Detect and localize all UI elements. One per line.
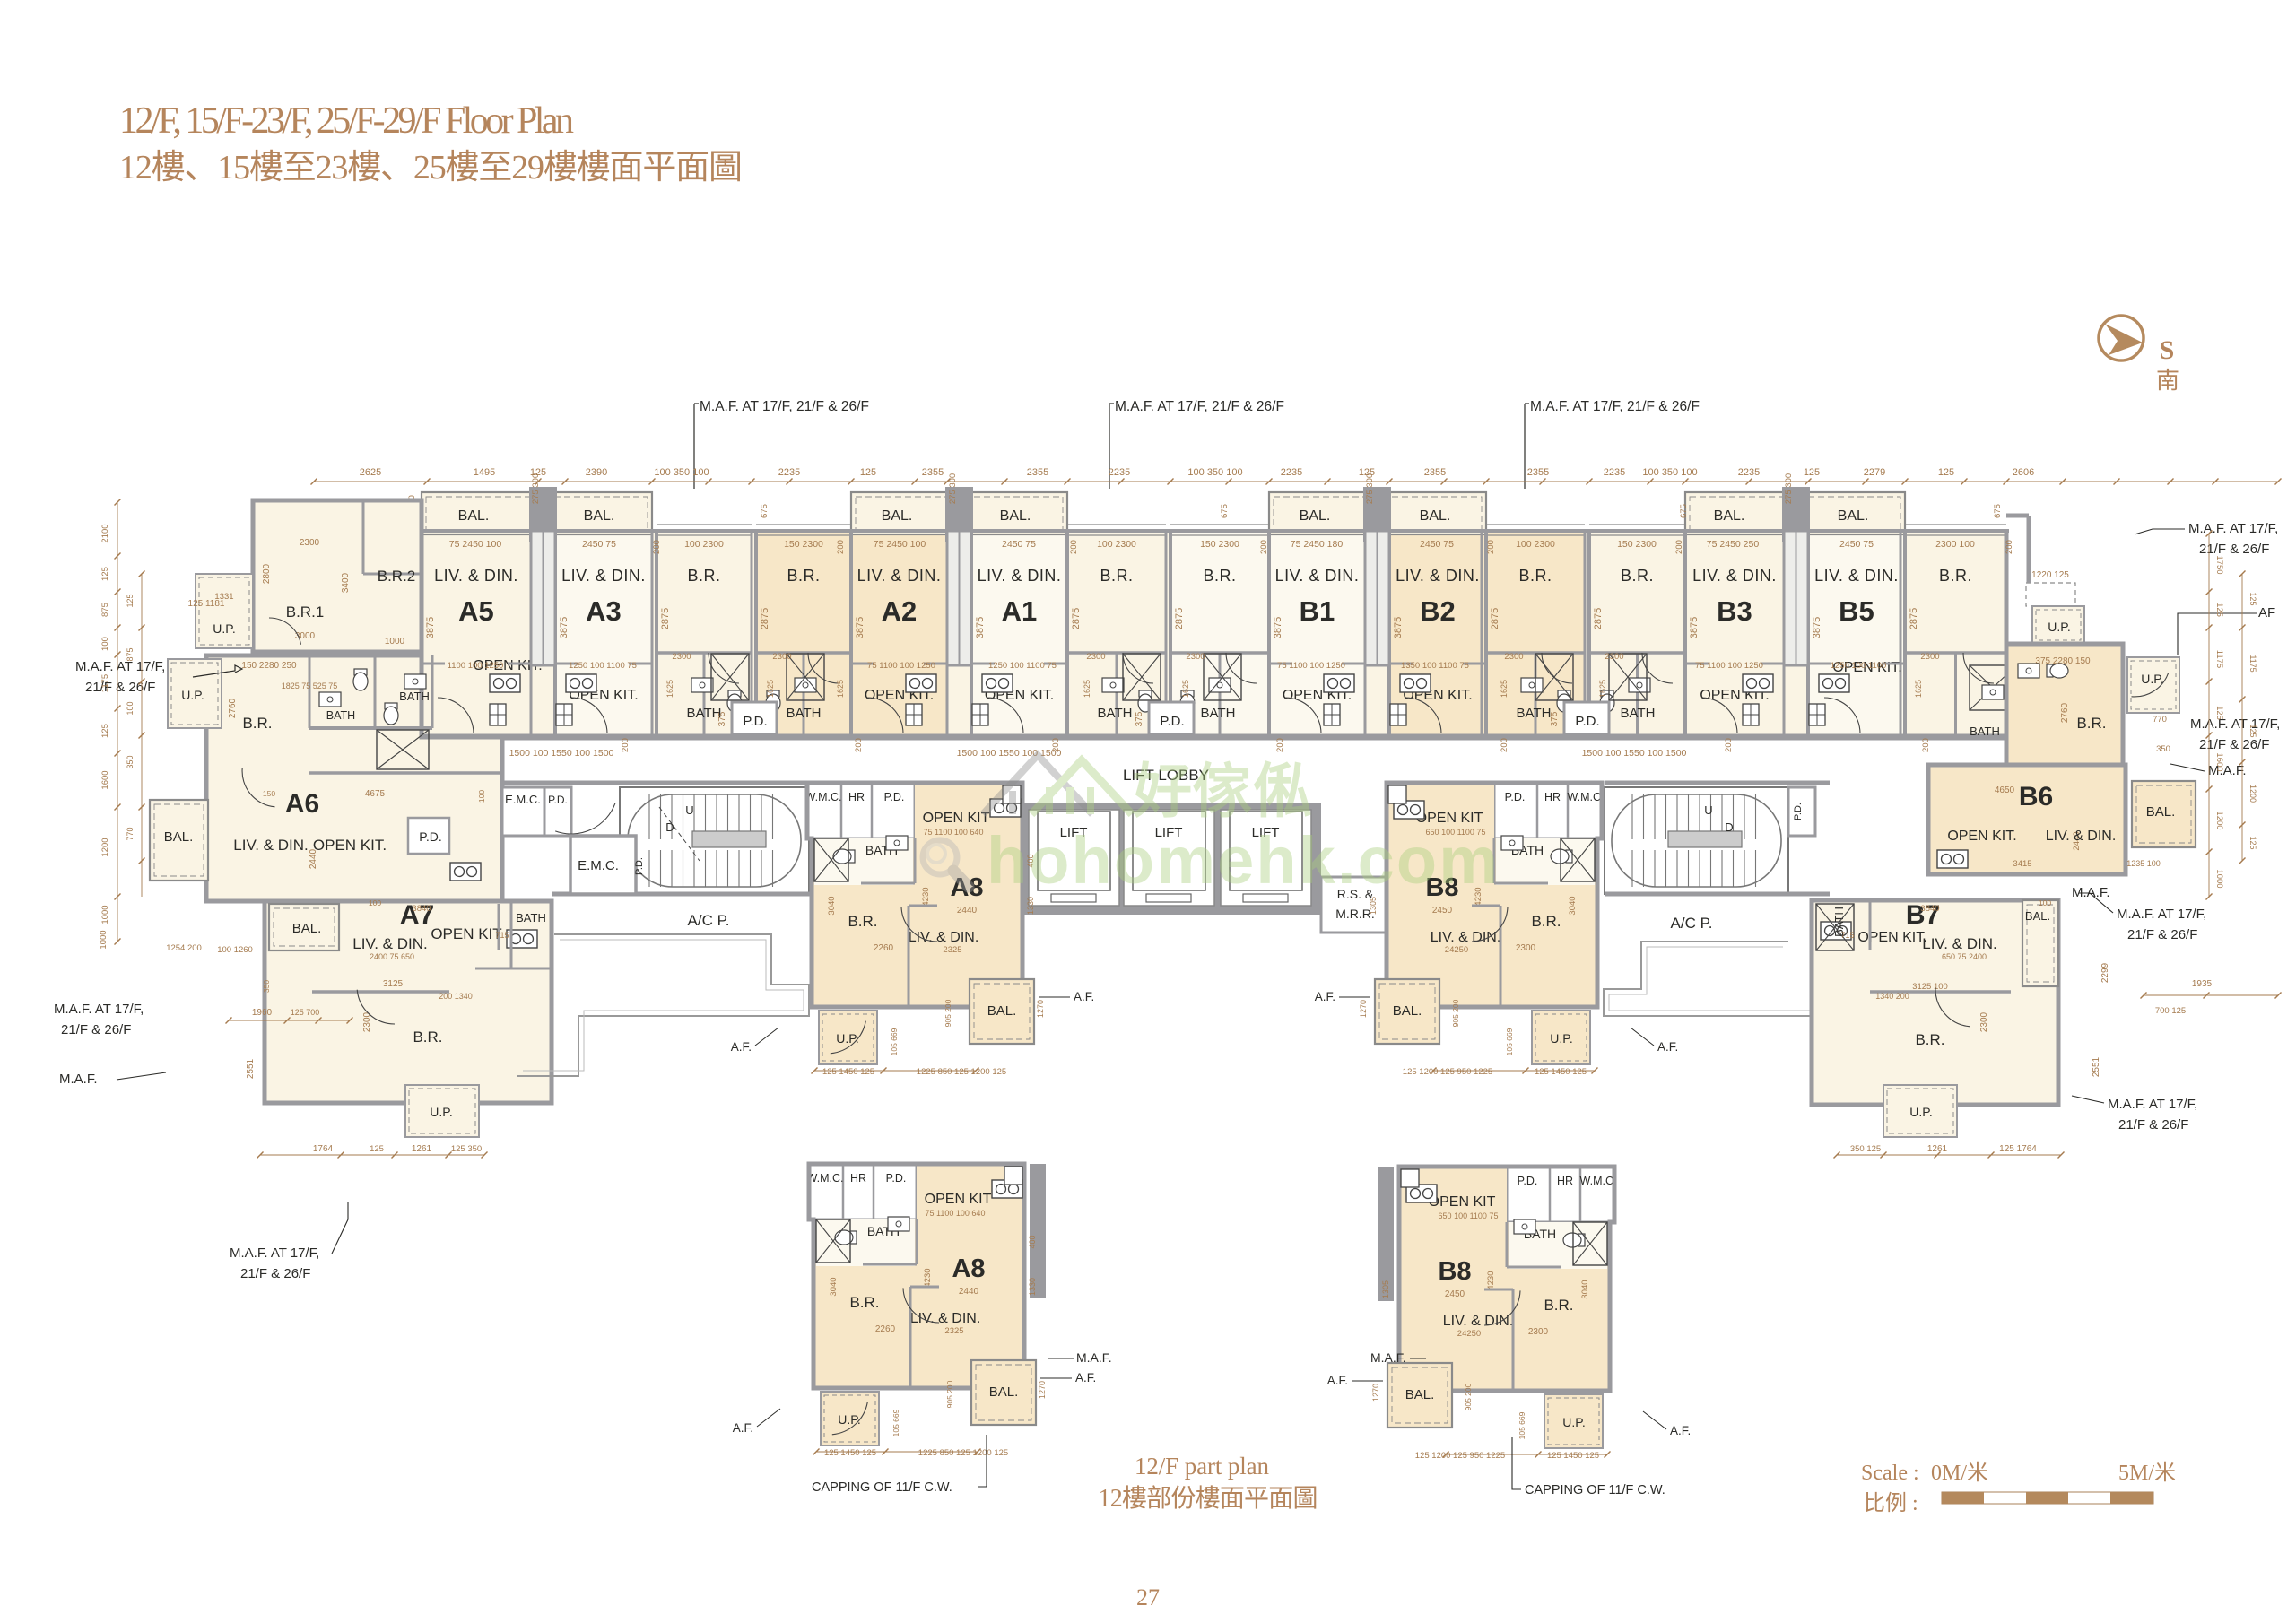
svg-text:125 1450 125: 125 1450 125 bbox=[1547, 1451, 1599, 1461]
svg-text:M.A.F. AT 17/F,: M.A.F. AT 17/F, bbox=[2117, 907, 2206, 922]
svg-text:100 350 100: 100 350 100 bbox=[1187, 467, 1242, 478]
svg-text:A.F.: A.F. bbox=[1075, 1371, 1096, 1384]
svg-text:125 1764: 125 1764 bbox=[1999, 1144, 2037, 1154]
svg-text:150 2300: 150 2300 bbox=[1200, 539, 1239, 550]
svg-text:U.P.: U.P. bbox=[181, 688, 204, 702]
svg-text:P.D.: P.D. bbox=[419, 829, 441, 844]
svg-text:P.D.: P.D. bbox=[1518, 1175, 1538, 1187]
svg-text:B.R.: B.R. bbox=[687, 567, 720, 585]
svg-text:21/F & 26/F: 21/F & 26/F bbox=[2127, 927, 2197, 942]
svg-text:2760: 2760 bbox=[2060, 702, 2070, 723]
svg-text:3040: 3040 bbox=[1568, 896, 1578, 915]
svg-text:24250: 24250 bbox=[1445, 945, 1468, 955]
svg-text:1625: 1625 bbox=[665, 680, 674, 698]
svg-text:875: 875 bbox=[126, 647, 135, 661]
svg-text:125: 125 bbox=[370, 1144, 384, 1154]
svg-text:1000: 1000 bbox=[99, 930, 109, 949]
svg-text:M.A.F. AT 17/F,: M.A.F. AT 17/F, bbox=[54, 1002, 143, 1017]
svg-text:350 125: 350 125 bbox=[1850, 1144, 1881, 1154]
svg-text:BATH: BATH bbox=[1201, 706, 1236, 721]
svg-text:3875: 3875 bbox=[425, 617, 436, 638]
svg-text:0M/米: 0M/米 bbox=[1931, 1461, 1988, 1485]
svg-text:2440: 2440 bbox=[959, 1287, 979, 1297]
svg-text:350: 350 bbox=[126, 755, 135, 768]
svg-text:P.D.: P.D. bbox=[884, 791, 905, 803]
svg-text:2235: 2235 bbox=[1738, 467, 1760, 478]
svg-text:D: D bbox=[665, 820, 674, 834]
svg-text:1625: 1625 bbox=[766, 680, 775, 698]
svg-text:2875: 2875 bbox=[1174, 608, 1185, 629]
svg-text:2300: 2300 bbox=[672, 652, 691, 662]
svg-text:100 350 100: 100 350 100 bbox=[654, 467, 709, 478]
svg-text:1200: 1200 bbox=[2214, 811, 2224, 829]
svg-text:CAPPING OF 11/F C.W.: CAPPING OF 11/F C.W. bbox=[812, 1480, 952, 1495]
svg-text:1250 100 1100: 1250 100 1100 bbox=[1831, 661, 1887, 671]
svg-text:2450 75: 2450 75 bbox=[1420, 539, 1454, 550]
svg-text:U.P.: U.P. bbox=[430, 1105, 452, 1119]
svg-text:715: 715 bbox=[495, 931, 509, 940]
svg-text:2260: 2260 bbox=[875, 1324, 896, 1334]
svg-text:BAL.: BAL. bbox=[1000, 508, 1031, 524]
svg-text:U.P.: U.P. bbox=[838, 1412, 860, 1427]
svg-text:BAL.: BAL. bbox=[987, 1003, 1017, 1019]
svg-text:A/C P.: A/C P. bbox=[1671, 915, 1713, 932]
svg-text:675: 675 bbox=[1220, 504, 1230, 518]
svg-text:LIV. & DIN.: LIV. & DIN. bbox=[561, 567, 646, 585]
svg-text:2606: 2606 bbox=[2013, 467, 2034, 478]
svg-text:S: S bbox=[2160, 335, 2175, 365]
svg-text:2260: 2260 bbox=[874, 943, 894, 953]
svg-text:A.F.: A.F. bbox=[1315, 990, 1335, 1003]
svg-text:BATH: BATH bbox=[399, 690, 430, 703]
svg-text:1625: 1625 bbox=[1598, 680, 1607, 698]
svg-text:B.R.1: B.R.1 bbox=[286, 603, 325, 621]
svg-text:比例 :: 比例 : bbox=[1864, 1491, 1918, 1515]
svg-text:875: 875 bbox=[100, 603, 110, 617]
svg-text:BAL.: BAL. bbox=[292, 921, 322, 936]
svg-text:1175: 1175 bbox=[2214, 650, 2224, 668]
svg-text:BAL.: BAL. bbox=[584, 508, 615, 524]
svg-text:200: 200 bbox=[652, 540, 662, 554]
svg-text:2300: 2300 bbox=[772, 652, 791, 662]
svg-text:400: 400 bbox=[1028, 1235, 1037, 1248]
svg-text:125 1450 125: 125 1450 125 bbox=[824, 1448, 876, 1458]
svg-text:2355: 2355 bbox=[922, 467, 944, 478]
svg-text:75 2450 100: 75 2450 100 bbox=[449, 539, 502, 550]
svg-text:M.A.F. AT 17/F,: M.A.F. AT 17/F, bbox=[75, 659, 165, 674]
svg-text:3875: 3875 bbox=[1393, 617, 1404, 638]
svg-text:1261: 1261 bbox=[412, 1144, 432, 1154]
svg-text:A.F.: A.F. bbox=[1327, 1374, 1348, 1387]
svg-text:BAL.: BAL. bbox=[1420, 508, 1451, 524]
svg-text:1350 100 1100 75: 1350 100 1100 75 bbox=[1401, 661, 1469, 671]
svg-text:1200: 1200 bbox=[100, 838, 110, 856]
svg-text:U: U bbox=[685, 803, 693, 817]
svg-text:2300: 2300 bbox=[1186, 652, 1205, 662]
svg-text:21/F & 26/F: 21/F & 26/F bbox=[240, 1266, 310, 1281]
svg-text:E.M.C.: E.M.C. bbox=[505, 793, 541, 806]
svg-text:200: 200 bbox=[1500, 738, 1509, 752]
svg-text:12樓、15樓至23樓、25樓至29樓樓面平面圖: 12樓、15樓至23樓、25樓至29樓樓面平面圖 bbox=[119, 149, 743, 187]
svg-text:100: 100 bbox=[2039, 898, 2051, 907]
svg-text:P.D.: P.D. bbox=[548, 794, 568, 806]
svg-text:U: U bbox=[1704, 803, 1712, 817]
svg-text:P.D.: P.D. bbox=[1505, 791, 1526, 803]
svg-text:700 125: 700 125 bbox=[2155, 1006, 2186, 1016]
svg-text:1225 850 125 1200 125: 1225 850 125 1200 125 bbox=[917, 1067, 1006, 1077]
svg-text:3125: 3125 bbox=[383, 979, 404, 989]
svg-text:1235 100: 1235 100 bbox=[2126, 859, 2161, 868]
svg-text:125: 125 bbox=[126, 594, 135, 607]
svg-text:3040: 3040 bbox=[827, 896, 837, 915]
svg-text:375: 375 bbox=[1550, 711, 1560, 726]
svg-text:CAPPING OF 11/F C.W.: CAPPING OF 11/F C.W. bbox=[1525, 1483, 1665, 1497]
svg-text:B.R.: B.R. bbox=[848, 913, 877, 930]
svg-text:1250 100 1100 75: 1250 100 1100 75 bbox=[569, 661, 637, 671]
svg-text:200: 200 bbox=[1674, 540, 1684, 554]
svg-text:A.F.: A.F. bbox=[731, 1040, 752, 1054]
svg-text:P.D.: P.D. bbox=[1793, 803, 1804, 820]
svg-text:2300: 2300 bbox=[1516, 943, 1536, 953]
svg-text:375: 375 bbox=[1135, 711, 1144, 726]
svg-text:4650: 4650 bbox=[1995, 785, 2015, 795]
svg-text:U.P.: U.P. bbox=[2141, 672, 2163, 686]
svg-text:3125 100: 3125 100 bbox=[1912, 982, 1948, 992]
svg-text:W.M.C.: W.M.C. bbox=[807, 1172, 844, 1185]
svg-text:M.A.F.: M.A.F. bbox=[2208, 763, 2247, 778]
svg-text:OPEN KIT: OPEN KIT bbox=[925, 1192, 992, 1207]
svg-text:1625: 1625 bbox=[1181, 680, 1190, 698]
svg-text:200: 200 bbox=[1724, 738, 1734, 752]
svg-text:1254 200: 1254 200 bbox=[166, 943, 202, 953]
svg-text:BAL.: BAL. bbox=[2025, 909, 2050, 923]
svg-text:715: 715 bbox=[1840, 931, 1854, 940]
svg-text:4230: 4230 bbox=[923, 1268, 933, 1287]
svg-text:1600: 1600 bbox=[100, 770, 110, 789]
svg-text:1330: 1330 bbox=[1026, 897, 1035, 915]
svg-text:650 100 1100 75: 650 100 1100 75 bbox=[1439, 1211, 1499, 1220]
svg-text:1825 75 525 75: 1825 75 525 75 bbox=[282, 681, 338, 690]
svg-text:21/F & 26/F: 21/F & 26/F bbox=[2199, 542, 2269, 557]
svg-text:125: 125 bbox=[100, 567, 110, 581]
svg-text:905 200: 905 200 bbox=[945, 1380, 954, 1408]
svg-text:2299: 2299 bbox=[2100, 962, 2110, 983]
svg-text:A1: A1 bbox=[1002, 595, 1038, 627]
svg-text:675: 675 bbox=[760, 504, 770, 518]
svg-text:好傢俬: 好傢俬 bbox=[1132, 758, 1312, 824]
svg-text:770: 770 bbox=[2152, 715, 2167, 725]
svg-text:LIV. & DIN.: LIV. & DIN. bbox=[1922, 935, 1996, 952]
svg-text:200: 200 bbox=[1921, 738, 1931, 752]
svg-text:1500 100 1550 100 1500: 1500 100 1550 100 1500 bbox=[957, 748, 1062, 759]
svg-text:OPEN KIT: OPEN KIT bbox=[1429, 1194, 1496, 1210]
svg-text:12樓部份樓面平面圖: 12樓部份樓面平面圖 bbox=[1099, 1484, 1318, 1513]
svg-text:100 2300: 100 2300 bbox=[1097, 539, 1136, 550]
svg-text:M.A.F.: M.A.F. bbox=[1076, 1350, 1112, 1365]
svg-text:E.M.C.: E.M.C. bbox=[578, 858, 619, 873]
svg-text:100 2300: 100 2300 bbox=[1516, 539, 1555, 550]
svg-text:M.A.F.: M.A.F. bbox=[2072, 885, 2110, 900]
svg-text:BATH: BATH bbox=[516, 911, 546, 924]
svg-text:125 1450 125: 125 1450 125 bbox=[1535, 1067, 1587, 1077]
svg-text:1250 100 1100 75: 1250 100 1100 75 bbox=[988, 661, 1057, 671]
svg-text:2875: 2875 bbox=[1593, 608, 1604, 629]
svg-text:B6: B6 bbox=[2019, 782, 2053, 811]
svg-text:U.P.: U.P. bbox=[1550, 1031, 1572, 1046]
svg-text:B5: B5 bbox=[1839, 595, 1874, 627]
svg-text:U.P.: U.P. bbox=[2048, 620, 2070, 634]
svg-text:2325: 2325 bbox=[943, 945, 961, 955]
svg-text:M.A.F. AT 17/F,: M.A.F. AT 17/F, bbox=[2108, 1097, 2197, 1112]
svg-text:B3: B3 bbox=[1717, 595, 1752, 627]
svg-text:350: 350 bbox=[2156, 744, 2170, 754]
svg-text:2440: 2440 bbox=[957, 906, 978, 916]
svg-text:1261: 1261 bbox=[1927, 1144, 1948, 1154]
svg-text:U.P.: U.P. bbox=[1562, 1415, 1585, 1429]
svg-text:350: 350 bbox=[262, 980, 271, 993]
svg-text:LIV. & DIN.: LIV. & DIN. bbox=[1275, 567, 1360, 585]
svg-text:M.A.F. AT 17/F, 21/F & 26: M.A.F. AT 17/F, 21/F & 26/F bbox=[1530, 399, 1700, 414]
svg-text:B.R.: B.R. bbox=[1531, 913, 1561, 930]
svg-text:B.R.: B.R. bbox=[849, 1294, 879, 1311]
svg-text:2300 100: 2300 100 bbox=[1935, 539, 1975, 550]
svg-text:3040: 3040 bbox=[829, 1277, 839, 1296]
svg-text:200: 200 bbox=[2005, 540, 2014, 554]
svg-text:275 300: 275 300 bbox=[1365, 473, 1375, 504]
svg-text:BAL.: BAL. bbox=[2146, 804, 2176, 820]
svg-text:OPEN KIT.: OPEN KIT. bbox=[1857, 930, 1926, 945]
svg-text:125: 125 bbox=[1804, 467, 1820, 478]
svg-text:275 300: 275 300 bbox=[1784, 473, 1794, 504]
svg-text:1220 125: 1220 125 bbox=[2031, 570, 2069, 580]
svg-text:BAL.: BAL. bbox=[1838, 508, 1869, 524]
svg-text:2300: 2300 bbox=[1086, 652, 1105, 662]
svg-text:B.R.: B.R. bbox=[1203, 567, 1236, 585]
svg-text:905 200: 905 200 bbox=[944, 999, 952, 1027]
svg-text:U.P.: U.P. bbox=[836, 1031, 858, 1046]
svg-text:1305: 1305 bbox=[1369, 897, 1378, 915]
svg-text:125 1200 125 950 1225: 125 1200 125 950 1225 bbox=[1415, 1451, 1505, 1461]
svg-text:1625: 1625 bbox=[836, 680, 845, 698]
svg-text:BAL.: BAL. bbox=[458, 508, 490, 524]
svg-text:21/F & 26/F: 21/F & 26/F bbox=[85, 680, 155, 695]
svg-text:BAL.: BAL. bbox=[1405, 1387, 1435, 1402]
svg-text:150: 150 bbox=[263, 789, 275, 798]
svg-text:1270: 1270 bbox=[1359, 1000, 1368, 1018]
svg-text:hohomehk.com: hohomehk.com bbox=[987, 823, 1498, 898]
svg-text:375: 375 bbox=[717, 711, 727, 726]
svg-text:B2: B2 bbox=[1420, 595, 1456, 627]
svg-text:125: 125 bbox=[2214, 603, 2224, 617]
svg-text:HR: HR bbox=[1557, 1175, 1573, 1187]
svg-text:M.A.F.: M.A.F. bbox=[59, 1072, 98, 1087]
svg-text:1175: 1175 bbox=[2248, 655, 2257, 672]
svg-text:LIV. & DIN.: LIV. & DIN. bbox=[1692, 567, 1777, 585]
svg-text:105 669: 105 669 bbox=[1518, 1411, 1526, 1439]
svg-text:LIV. & DIN.: LIV. & DIN. bbox=[1431, 930, 1501, 945]
svg-text:200: 200 bbox=[1051, 738, 1061, 752]
svg-text:1750: 1750 bbox=[2214, 555, 2224, 574]
svg-text:75 1100 100 1250: 75 1100 100 1250 bbox=[867, 661, 935, 671]
svg-text:M.A.F. AT 17/F, 21/F & 26: M.A.F. AT 17/F, 21/F & 26/F bbox=[1115, 399, 1284, 414]
svg-text:75 1100 100 1250: 75 1100 100 1250 bbox=[1277, 661, 1345, 671]
svg-text:2450 75: 2450 75 bbox=[1839, 539, 1874, 550]
svg-text:2551: 2551 bbox=[2092, 1056, 2101, 1077]
svg-text:LIV. & DIN.: LIV. & DIN. bbox=[352, 935, 427, 952]
svg-text:2450 75: 2450 75 bbox=[1002, 539, 1036, 550]
svg-text:105 669: 105 669 bbox=[1505, 1028, 1514, 1055]
svg-text:M.A.F.: M.A.F. bbox=[1370, 1350, 1406, 1365]
svg-text:LIV. & DIN.: LIV. & DIN. bbox=[2046, 829, 2117, 844]
svg-text:B.R.2: B.R.2 bbox=[378, 568, 416, 585]
svg-text:200: 200 bbox=[1069, 540, 1079, 554]
svg-text:1200: 1200 bbox=[2248, 785, 2257, 803]
svg-text:BATH: BATH bbox=[1517, 706, 1552, 721]
svg-text:M.A.F. AT 17/F,: M.A.F. AT 17/F, bbox=[230, 1245, 319, 1261]
svg-text:M.A.F. AT 17/F,: M.A.F. AT 17/F, bbox=[2190, 716, 2280, 732]
svg-text:2279: 2279 bbox=[1864, 467, 1885, 478]
svg-text:A2: A2 bbox=[882, 595, 918, 627]
svg-text:105 669: 105 669 bbox=[890, 1028, 899, 1055]
svg-text:100: 100 bbox=[477, 790, 486, 803]
svg-text:125 350: 125 350 bbox=[451, 1144, 482, 1154]
svg-text:OPEN KIT: OPEN KIT bbox=[430, 925, 501, 942]
svg-text:M.A.F. AT 17/F,: M.A.F. AT 17/F, bbox=[2188, 521, 2278, 536]
svg-text:2390: 2390 bbox=[586, 467, 607, 478]
svg-text:200: 200 bbox=[1486, 540, 1496, 554]
svg-text:W.M.C.: W.M.C. bbox=[1580, 1175, 1617, 1187]
svg-text:1500 100 1550 100 1500: 1500 100 1550 100 1500 bbox=[1582, 748, 1687, 759]
svg-text:200: 200 bbox=[836, 540, 846, 554]
svg-text:2100: 2100 bbox=[100, 524, 110, 542]
svg-text:P.D.: P.D. bbox=[743, 714, 767, 729]
svg-text:1935: 1935 bbox=[2192, 979, 2213, 989]
svg-text:2300: 2300 bbox=[1528, 1327, 1549, 1337]
svg-text:12/F part plan: 12/F part plan bbox=[1135, 1453, 1270, 1480]
svg-text:100: 100 bbox=[100, 637, 110, 651]
svg-text:M.A.F. AT 17/F, 21/F & 26: M.A.F. AT 17/F, 21/F & 26/F bbox=[700, 399, 869, 414]
svg-text:1000: 1000 bbox=[385, 637, 405, 647]
svg-text:BAL.: BAL. bbox=[1714, 508, 1745, 524]
svg-text:75 2450 100: 75 2450 100 bbox=[874, 539, 926, 550]
svg-text:U.P.: U.P. bbox=[1909, 1105, 1932, 1119]
svg-text:LIV. & DIN.: LIV. & DIN. bbox=[857, 567, 942, 585]
svg-text:1330: 1330 bbox=[1028, 1278, 1037, 1296]
svg-text:125: 125 bbox=[2214, 706, 2224, 720]
svg-text:1175: 1175 bbox=[100, 674, 110, 692]
svg-text:2875: 2875 bbox=[660, 608, 671, 629]
svg-text:2355: 2355 bbox=[1027, 467, 1048, 478]
svg-text:2355: 2355 bbox=[1527, 467, 1549, 478]
svg-text:3875: 3875 bbox=[1273, 617, 1283, 638]
svg-text:A8: A8 bbox=[952, 1254, 985, 1283]
svg-text:5M/米: 5M/米 bbox=[2118, 1461, 2176, 1485]
svg-text:A3: A3 bbox=[586, 595, 622, 627]
svg-text:125: 125 bbox=[2248, 592, 2257, 605]
svg-text:275 300: 275 300 bbox=[948, 473, 958, 504]
svg-text:675: 675 bbox=[1993, 504, 2003, 518]
svg-text:100 1260: 100 1260 bbox=[217, 945, 253, 955]
svg-text:12/F, 15/F-23/F, 25/F-29/F Flo: 12/F, 15/F-23/F, 25/F-29/F Floor Plan bbox=[119, 100, 574, 142]
svg-text:150 2280 250: 150 2280 250 bbox=[241, 661, 297, 671]
svg-text:LIV. & DIN.: LIV. & DIN. bbox=[1443, 1314, 1514, 1329]
svg-text:3875: 3875 bbox=[855, 617, 865, 638]
svg-text:2875: 2875 bbox=[760, 608, 770, 629]
svg-text:HR: HR bbox=[848, 791, 865, 803]
svg-text:2300: 2300 bbox=[1979, 1011, 1989, 1032]
svg-text:1305: 1305 bbox=[1381, 1280, 1390, 1298]
svg-text:1270: 1270 bbox=[1371, 1384, 1380, 1402]
svg-text:B.R.: B.R. bbox=[2076, 715, 2106, 732]
svg-text:1500 100 1550 100 1500: 1500 100 1550 100 1500 bbox=[509, 748, 614, 759]
svg-text:HR: HR bbox=[850, 1172, 866, 1185]
svg-text:B.R.: B.R. bbox=[413, 1028, 442, 1046]
svg-text:P.D.: P.D. bbox=[886, 1172, 907, 1185]
svg-text:U.P.: U.P. bbox=[213, 621, 235, 636]
svg-text:2300: 2300 bbox=[1920, 652, 1939, 662]
svg-text:3875: 3875 bbox=[1812, 617, 1822, 638]
svg-text:3400: 3400 bbox=[341, 572, 351, 593]
svg-text:2355: 2355 bbox=[1424, 467, 1446, 478]
svg-text:2400 75 650: 2400 75 650 bbox=[370, 952, 414, 961]
svg-text:3875: 3875 bbox=[559, 617, 570, 638]
svg-text:105 669: 105 669 bbox=[891, 1409, 900, 1436]
svg-text:P.D.: P.D. bbox=[634, 857, 645, 875]
svg-text:27: 27 bbox=[1136, 1584, 1160, 1610]
svg-text:A.F.: A.F. bbox=[1670, 1424, 1691, 1437]
svg-text:2325: 2325 bbox=[944, 1326, 963, 1336]
svg-text:2450 75: 2450 75 bbox=[582, 539, 616, 550]
svg-text:4230: 4230 bbox=[921, 887, 931, 906]
svg-text:125 1200 125 950 1225: 125 1200 125 950 1225 bbox=[1403, 1067, 1492, 1077]
svg-text:B.R.: B.R. bbox=[1915, 1031, 1944, 1048]
svg-text:W.M.C.: W.M.C. bbox=[805, 791, 842, 803]
svg-text:905 200: 905 200 bbox=[1464, 1383, 1473, 1410]
svg-text:BATH: BATH bbox=[687, 706, 722, 721]
svg-text:2875: 2875 bbox=[1071, 608, 1082, 629]
svg-text:1625: 1625 bbox=[1500, 680, 1509, 698]
svg-text:24250: 24250 bbox=[1457, 1329, 1481, 1339]
svg-text:B.R.: B.R. bbox=[1621, 567, 1654, 585]
svg-text:南: 南 bbox=[2156, 368, 2179, 394]
svg-text:2875: 2875 bbox=[1490, 608, 1500, 629]
svg-text:125: 125 bbox=[1938, 467, 1954, 478]
svg-text:3415: 3415 bbox=[2013, 859, 2031, 869]
svg-text:125: 125 bbox=[860, 467, 876, 478]
svg-text:3840: 3840 bbox=[1920, 904, 1939, 914]
svg-text:OPEN KIT.: OPEN KIT. bbox=[313, 837, 387, 854]
svg-text:1270: 1270 bbox=[1038, 1381, 1047, 1399]
svg-text:75 1100 100 640: 75 1100 100 640 bbox=[926, 1209, 986, 1218]
svg-text:BATH: BATH bbox=[1621, 706, 1656, 721]
svg-text:3875: 3875 bbox=[975, 617, 986, 638]
svg-text:125 700: 125 700 bbox=[291, 1008, 320, 1017]
svg-text:BAL.: BAL. bbox=[1300, 508, 1331, 524]
svg-text:275 300: 275 300 bbox=[531, 473, 541, 504]
svg-text:21/F & 26/F: 21/F & 26/F bbox=[2118, 1117, 2188, 1133]
svg-text:1270: 1270 bbox=[1036, 1000, 1045, 1018]
svg-text:B.R.: B.R. bbox=[1518, 567, 1552, 585]
svg-text:200: 200 bbox=[1275, 738, 1285, 752]
svg-text:B.R.: B.R. bbox=[242, 715, 272, 732]
svg-text:B.R.: B.R. bbox=[1100, 567, 1133, 585]
svg-text:125: 125 bbox=[100, 724, 110, 738]
svg-text:1225 850 125 1200 125: 1225 850 125 1200 125 bbox=[918, 1448, 1008, 1458]
svg-text:100 2300: 100 2300 bbox=[684, 539, 724, 550]
svg-text:LIV. & DIN.: LIV. & DIN. bbox=[910, 1311, 981, 1326]
svg-text:AF: AF bbox=[2258, 605, 2275, 621]
svg-text:75 1100 100 640: 75 1100 100 640 bbox=[924, 828, 984, 837]
